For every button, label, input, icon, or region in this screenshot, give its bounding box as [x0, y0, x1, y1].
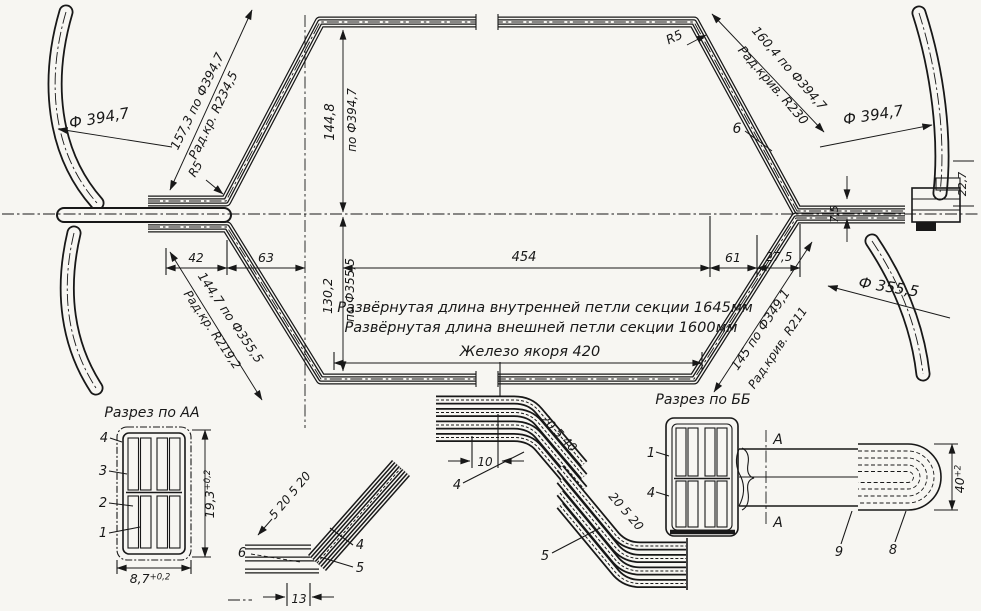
section-bb: Разрез по ББ 1 4: [647, 392, 754, 536]
detail-bend-bundle: 6 4 5 5 20 5 20 13: [228, 468, 401, 606]
dim-diameter-left: Ф 394,7: [68, 104, 131, 132]
section-aa-title: Разрез по АА: [104, 405, 199, 421]
section-aa-height-tol: +0,2: [203, 470, 213, 491]
section-aa-width-dim: 8,7+0,2: [130, 571, 171, 586]
loop-callout-9: 9: [835, 545, 843, 560]
detail-bend-callout-5: 5: [356, 561, 364, 576]
section-aa-height-value: 19,3: [202, 490, 217, 518]
dim-height-bottom: 130,2: [320, 278, 335, 314]
detail-z-bundle: 10 20 5 40 20 5 20 4 5: [436, 362, 687, 590]
dim-diameter-right: Ф 394,7: [842, 101, 905, 128]
loop-width-value: 40: [952, 477, 967, 493]
detail-bend-callout-4: 4: [356, 538, 364, 553]
section-bb-callout-1: 1: [647, 446, 655, 461]
right-lead-joint: [912, 178, 960, 231]
dim-height-top-ref: по Ф394,7: [345, 88, 359, 152]
detail-z-10-dim: 10: [477, 455, 493, 469]
detail-z-callout-5: 5: [541, 549, 549, 564]
end-arc-right-top: [919, 13, 942, 193]
loop-mark-a-bottom: A: [772, 515, 783, 531]
dim-offset-22-7: 22,7: [956, 172, 969, 197]
detail-bend-seq-dim: 5 20 5 20: [266, 469, 314, 522]
drawing-canvas: Ф 394,7 157,3 по Ф394,7 Рад.кр. R234,5 R…: [0, 0, 981, 611]
dim-61: 61: [725, 250, 741, 265]
section-bb-title: Разрез по ББ: [655, 392, 750, 408]
loop-width-dim: 40+2: [952, 465, 967, 493]
loop-width-tol: +2: [954, 465, 964, 478]
end-arc-right-bottom: [872, 241, 923, 374]
dim-454: 454: [512, 250, 537, 265]
loop-outer-contour: [858, 444, 941, 510]
section-aa-callout-3: 3: [99, 464, 107, 479]
section-aa-callout-1: 1: [99, 526, 107, 541]
loop-texture: [858, 451, 934, 503]
z-lower-bars: [560, 468, 687, 590]
note-inner-loop-length: Развёрнутая длина внутренней петли секци…: [337, 300, 752, 316]
callout-6: 6: [733, 121, 742, 137]
dim-r5-right: R5: [663, 27, 684, 48]
loop-callout-8: 8: [889, 543, 897, 558]
section-aa-callout-2: 2: [99, 496, 107, 511]
section-bb-callout-4: 4: [647, 486, 655, 501]
dim-27-5: 27,5: [766, 250, 793, 264]
bend-horizontal-bars: [245, 547, 319, 571]
engineering-drawing-armature-coil-section: Ф 394,7 157,3 по Ф394,7 Рад.кр. R234,5 R…: [0, 0, 981, 611]
detail-bend-13-dim: 13: [291, 592, 306, 606]
note-outer-loop-length: Развёрнутая длина внешней петли секции 1…: [345, 320, 738, 336]
detail-loop-end: A A 9 8 40+2: [736, 430, 967, 560]
section-aa: Разрез по АА 4 3 2 1 19,3+0,2 8,7+0,2: [99, 405, 217, 586]
dim-height-top: 144,8: [323, 103, 338, 140]
detail-z-callout-4: 4: [453, 478, 461, 493]
dim-63: 63: [258, 250, 274, 265]
end-arc-left-bottom: [67, 233, 96, 388]
loop-mark-a-top: A: [772, 432, 783, 448]
section-aa-callout-4: 4: [100, 431, 108, 446]
end-arc-left-top: [55, 12, 97, 203]
dim-42: 42: [188, 251, 203, 265]
section-aa-width-tol: +0,2: [150, 573, 171, 583]
section-bb-brace: [742, 448, 754, 510]
dim-r5-left: R5: [185, 159, 205, 180]
section-aa-conductors: [126, 438, 182, 548]
note-armature-iron: Железо якоря 420: [459, 344, 600, 360]
section-aa-width-value: 8,7: [130, 571, 150, 586]
section-bb-conductors: [670, 428, 735, 532]
dim-offset-7-5: 7,5: [828, 205, 841, 223]
detail-bend-callout-6: 6: [238, 546, 246, 561]
section-aa-height-dim: 19,3+0,2: [202, 470, 217, 518]
